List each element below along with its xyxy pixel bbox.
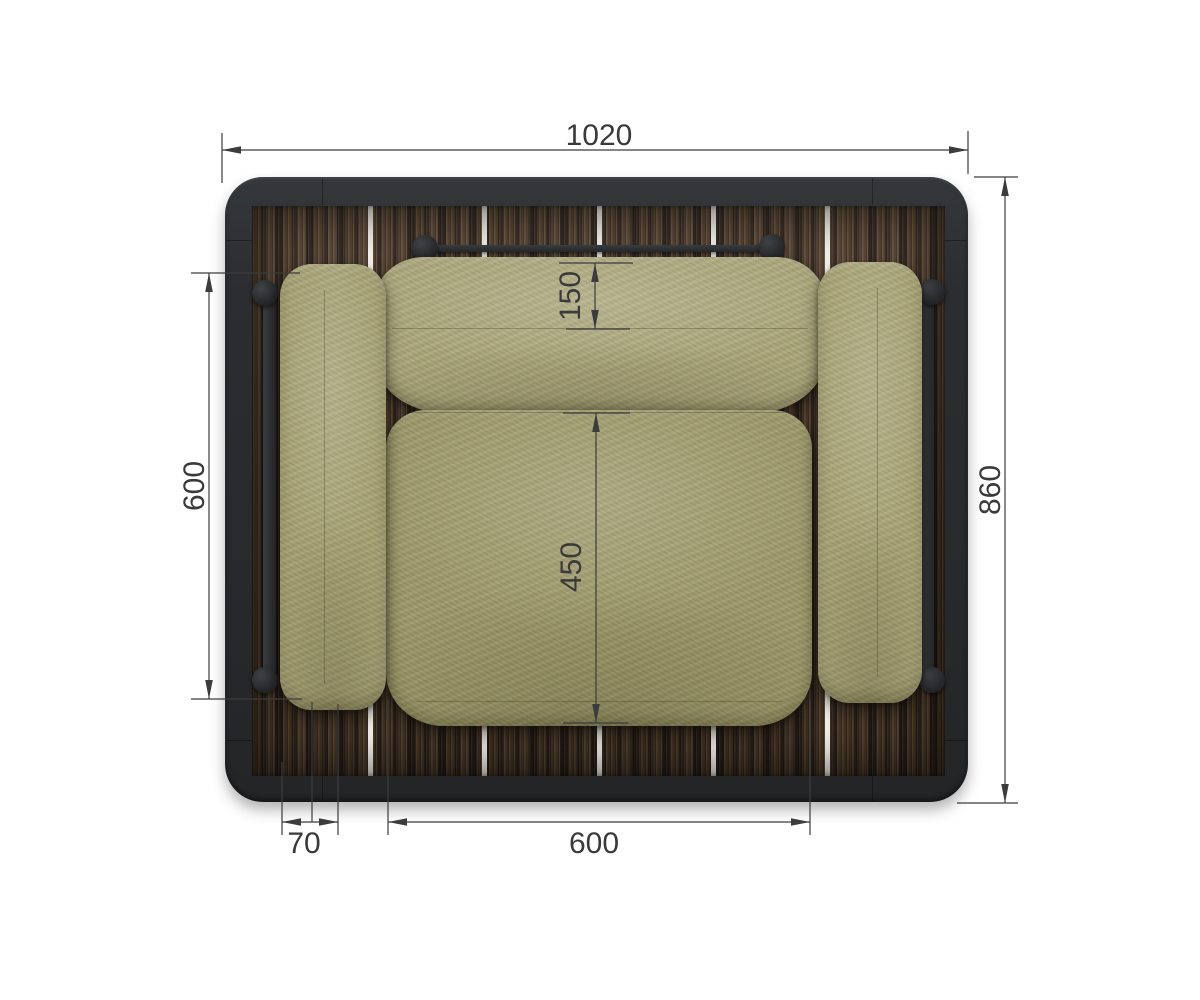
dim-armrest-length-label: 600	[178, 461, 211, 511]
dim-seat-width-label: 600	[569, 827, 619, 860]
dimension-drawing-canvas: 1020 860 600 150	[0, 0, 1200, 1000]
seat-cushion-seam	[416, 701, 782, 702]
frame-pin	[919, 279, 945, 305]
dim-overall-depth-label: 860	[974, 465, 1007, 515]
armrest-rail-right	[921, 298, 934, 676]
frame-joint	[322, 774, 323, 801]
frame-pin	[252, 280, 278, 306]
armrest-seam	[324, 290, 325, 684]
armrest-rail-left	[263, 298, 276, 678]
seat-cushion-seam	[400, 412, 798, 413]
frame-joint	[872, 774, 873, 801]
frame-pin	[252, 667, 278, 693]
armrest-cushion-left	[280, 264, 386, 710]
backrest-support-bar	[425, 245, 772, 252]
dim-overall-width: 1020	[222, 119, 968, 183]
armrest-cushion-right	[818, 262, 922, 703]
back-cushion-seam	[392, 328, 808, 329]
back-cushion	[374, 257, 826, 413]
frame-joint	[226, 240, 252, 241]
dim-overall-width-label: 1020	[566, 119, 633, 152]
seat-cushion	[386, 410, 812, 726]
frame-joint	[322, 178, 323, 205]
dim-armrest-width-label: 70	[287, 827, 320, 860]
frame-joint	[226, 740, 252, 741]
frame-pin	[919, 667, 945, 693]
armrest-seam	[877, 288, 878, 677]
frame-joint	[872, 178, 873, 205]
